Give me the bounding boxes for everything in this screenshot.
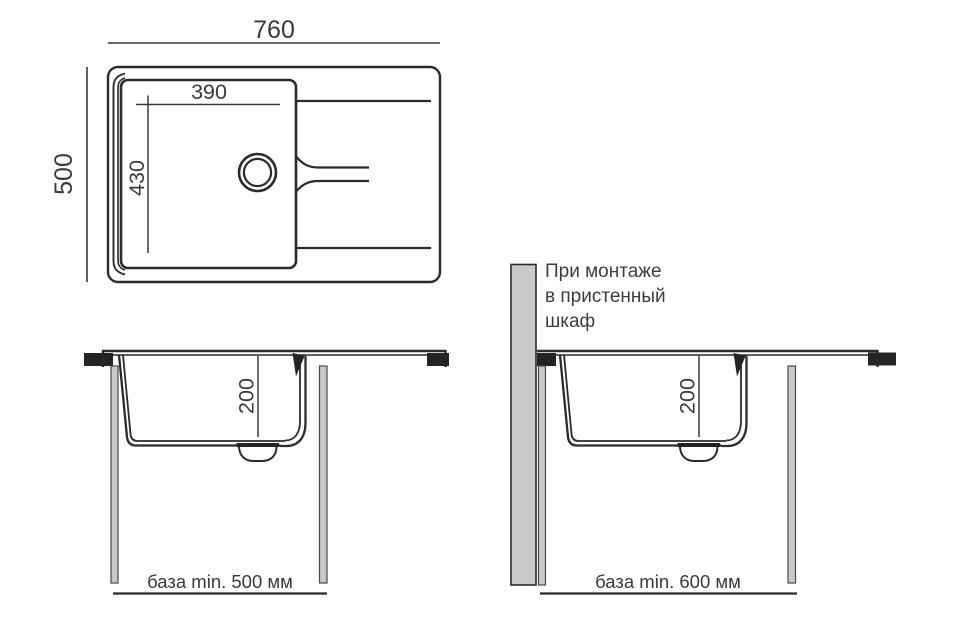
wall-note-line-3: шкаф: [545, 311, 595, 332]
base-label-right: база min. 600 мм: [595, 571, 741, 592]
overflow-channel-outer-right-view: [721, 356, 747, 446]
cabinet-panel-left-right-view: [539, 366, 546, 585]
wall-note-line-2: в пристенный: [545, 286, 666, 307]
top-view: 760 500 390 430: [50, 16, 440, 282]
overflow-channel-outer: [280, 356, 306, 446]
wall-panel: [511, 265, 536, 586]
base-label-left: база min. 500 мм: [147, 571, 293, 592]
bowl-profile-inner-right-view: [564, 355, 726, 441]
overflow-channel-inner-right-view: [726, 364, 741, 441]
dim-label-bowl-width: 390: [191, 80, 227, 104]
dim-label-depth-left: 200: [235, 378, 259, 414]
wall-note-line-1: При монтаже: [545, 261, 662, 282]
drain-trap: [239, 446, 277, 461]
dim-label-overall-width: 760: [253, 16, 295, 44]
cabinet-panel-right-right-view: [788, 366, 796, 583]
drain-inner-circle: [244, 159, 271, 186]
countertop-rim: [103, 351, 446, 367]
overflow-channel-inner: [285, 364, 300, 441]
rim-edge-wedge: [293, 353, 305, 377]
dim-label-overall-depth: 500: [50, 153, 78, 195]
sink-technical-drawing: 760 500 390 430: [0, 0, 966, 620]
countertop-cut-left-right-view: [537, 353, 556, 366]
countertop-rim-right-view: [537, 351, 878, 367]
cabinet-panel-right: [320, 366, 328, 583]
left-section: 200 база min. 500 мм: [84, 351, 449, 594]
bowl-profile-inner: [123, 355, 285, 441]
countertop-cut-right-right-view: [868, 353, 896, 366]
dim-label-depth-right: 200: [676, 378, 700, 414]
cabinet-panel-left: [111, 366, 118, 583]
right-section: При монтаже в пристенный шкаф 200 база m…: [511, 261, 896, 594]
dim-label-bowl-depth: 430: [125, 160, 149, 196]
drawing-svg: 760 500 390 430: [0, 0, 966, 620]
rim-edge-wedge-right-view: [734, 353, 746, 377]
countertop-cut-right: [427, 353, 449, 366]
countertop-cut-left: [84, 353, 113, 366]
drain-trap-right-view: [680, 446, 718, 461]
